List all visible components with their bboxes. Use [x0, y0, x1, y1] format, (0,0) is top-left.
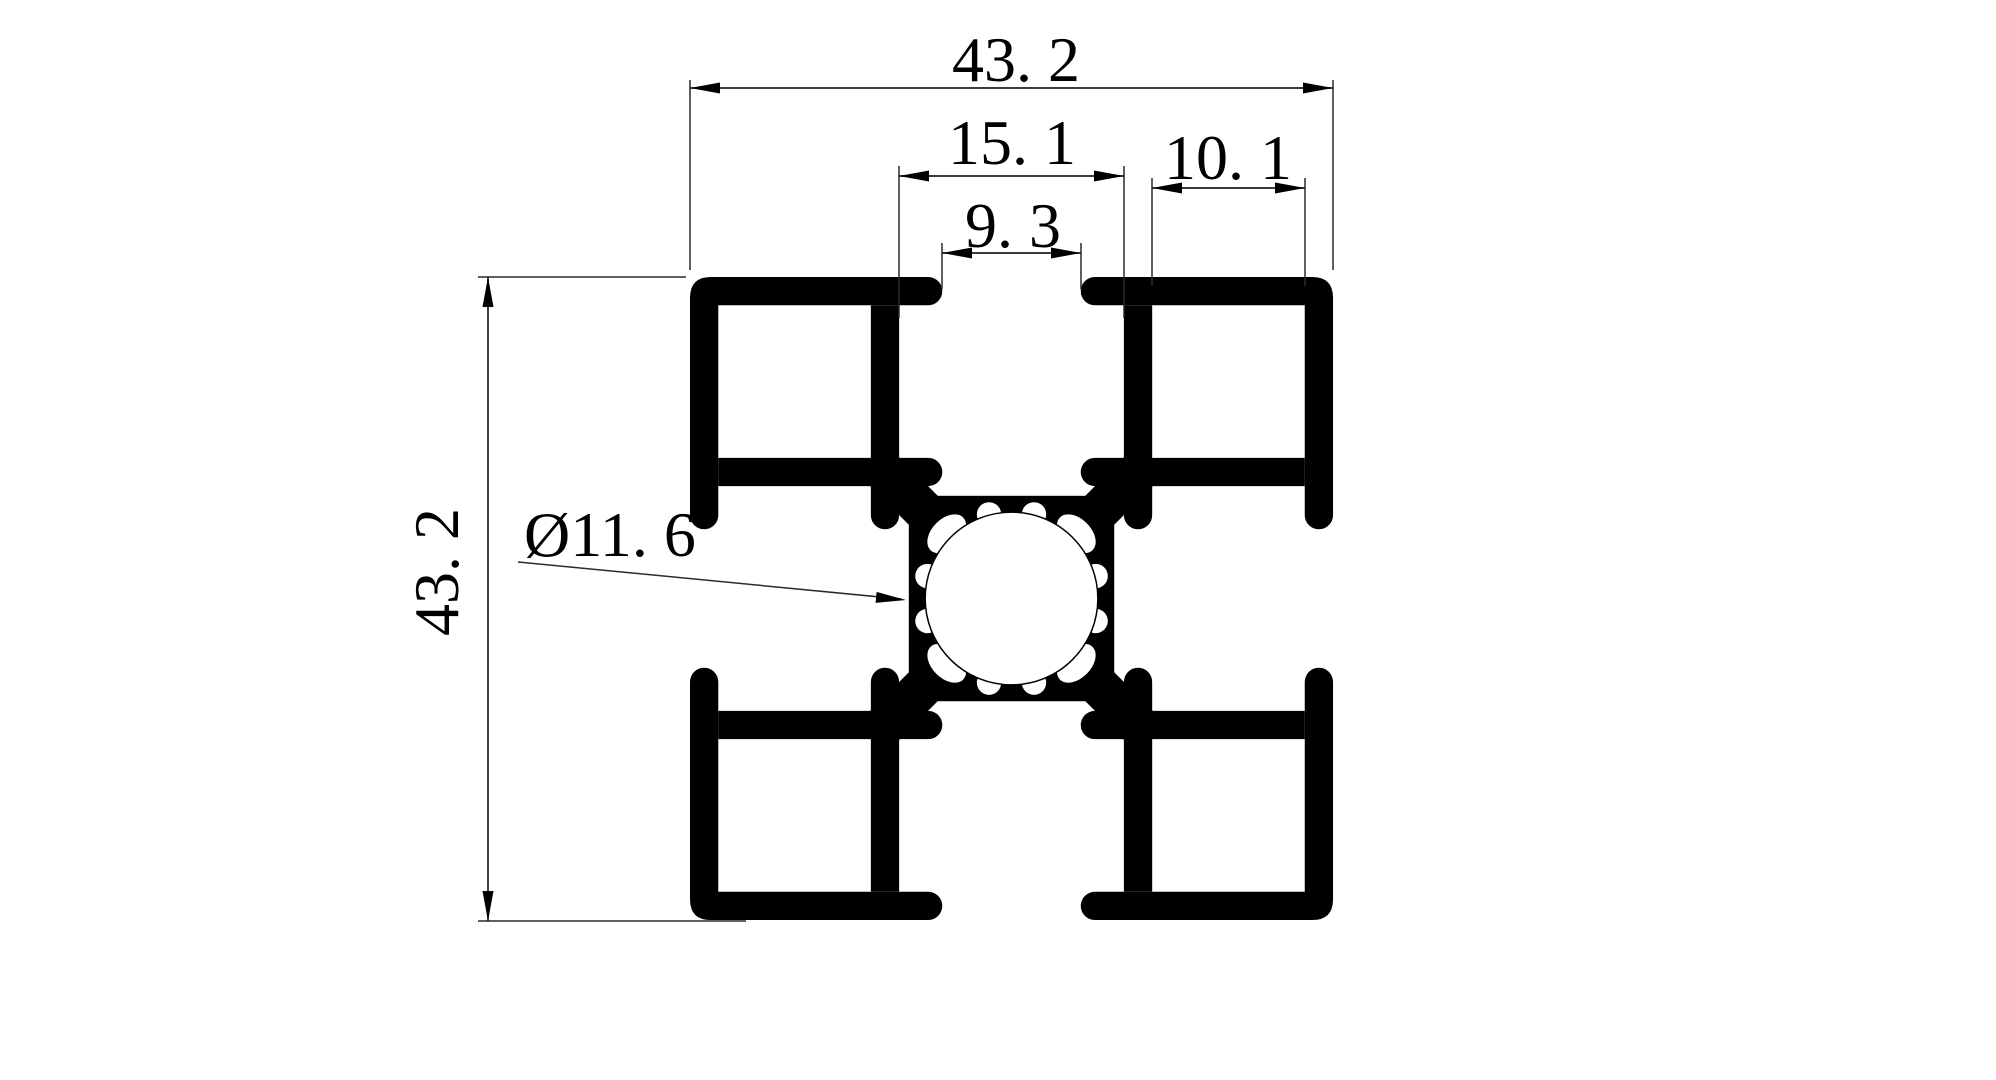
dim-center-bore-text: Ø11. 6 — [524, 499, 696, 570]
dim-corner-pocket-text: 10. 1 — [1164, 122, 1292, 193]
dim-slot-opening-text: 9. 3 — [965, 190, 1061, 261]
drawing-canvas: 43. 2 15. 1 9. 3 10. 1 43. 2 — [0, 0, 1996, 1080]
center-bore — [915, 502, 1108, 695]
arrowhead-icon — [899, 171, 929, 182]
arrowhead-icon — [1303, 83, 1333, 94]
dim-slot-opening: 9. 3 — [942, 190, 1081, 289]
arrowhead-icon — [876, 592, 907, 606]
arrowhead-icon — [690, 83, 720, 94]
technical-drawing: 43. 2 15. 1 9. 3 10. 1 43. 2 — [0, 0, 1996, 1080]
bore-hole — [925, 512, 1098, 685]
arrowhead-icon — [483, 891, 494, 921]
arrowhead-icon — [1094, 171, 1124, 182]
corner-assembly-bottom-right — [1081, 668, 1333, 920]
dim-corner-pocket: 10. 1 — [1152, 122, 1305, 286]
corner-assembly-top-left — [690, 277, 942, 529]
corner-assembly-top-right — [1081, 277, 1333, 529]
profile-body — [690, 277, 1333, 920]
dim-overall-width-text: 43. 2 — [952, 24, 1080, 95]
arrowhead-icon — [483, 277, 494, 307]
corner-assembly-bottom-left — [690, 668, 942, 920]
dim-overall-height-text: 43. 2 — [401, 508, 472, 636]
dim-slot-cavity-text: 15. 1 — [948, 107, 1076, 178]
